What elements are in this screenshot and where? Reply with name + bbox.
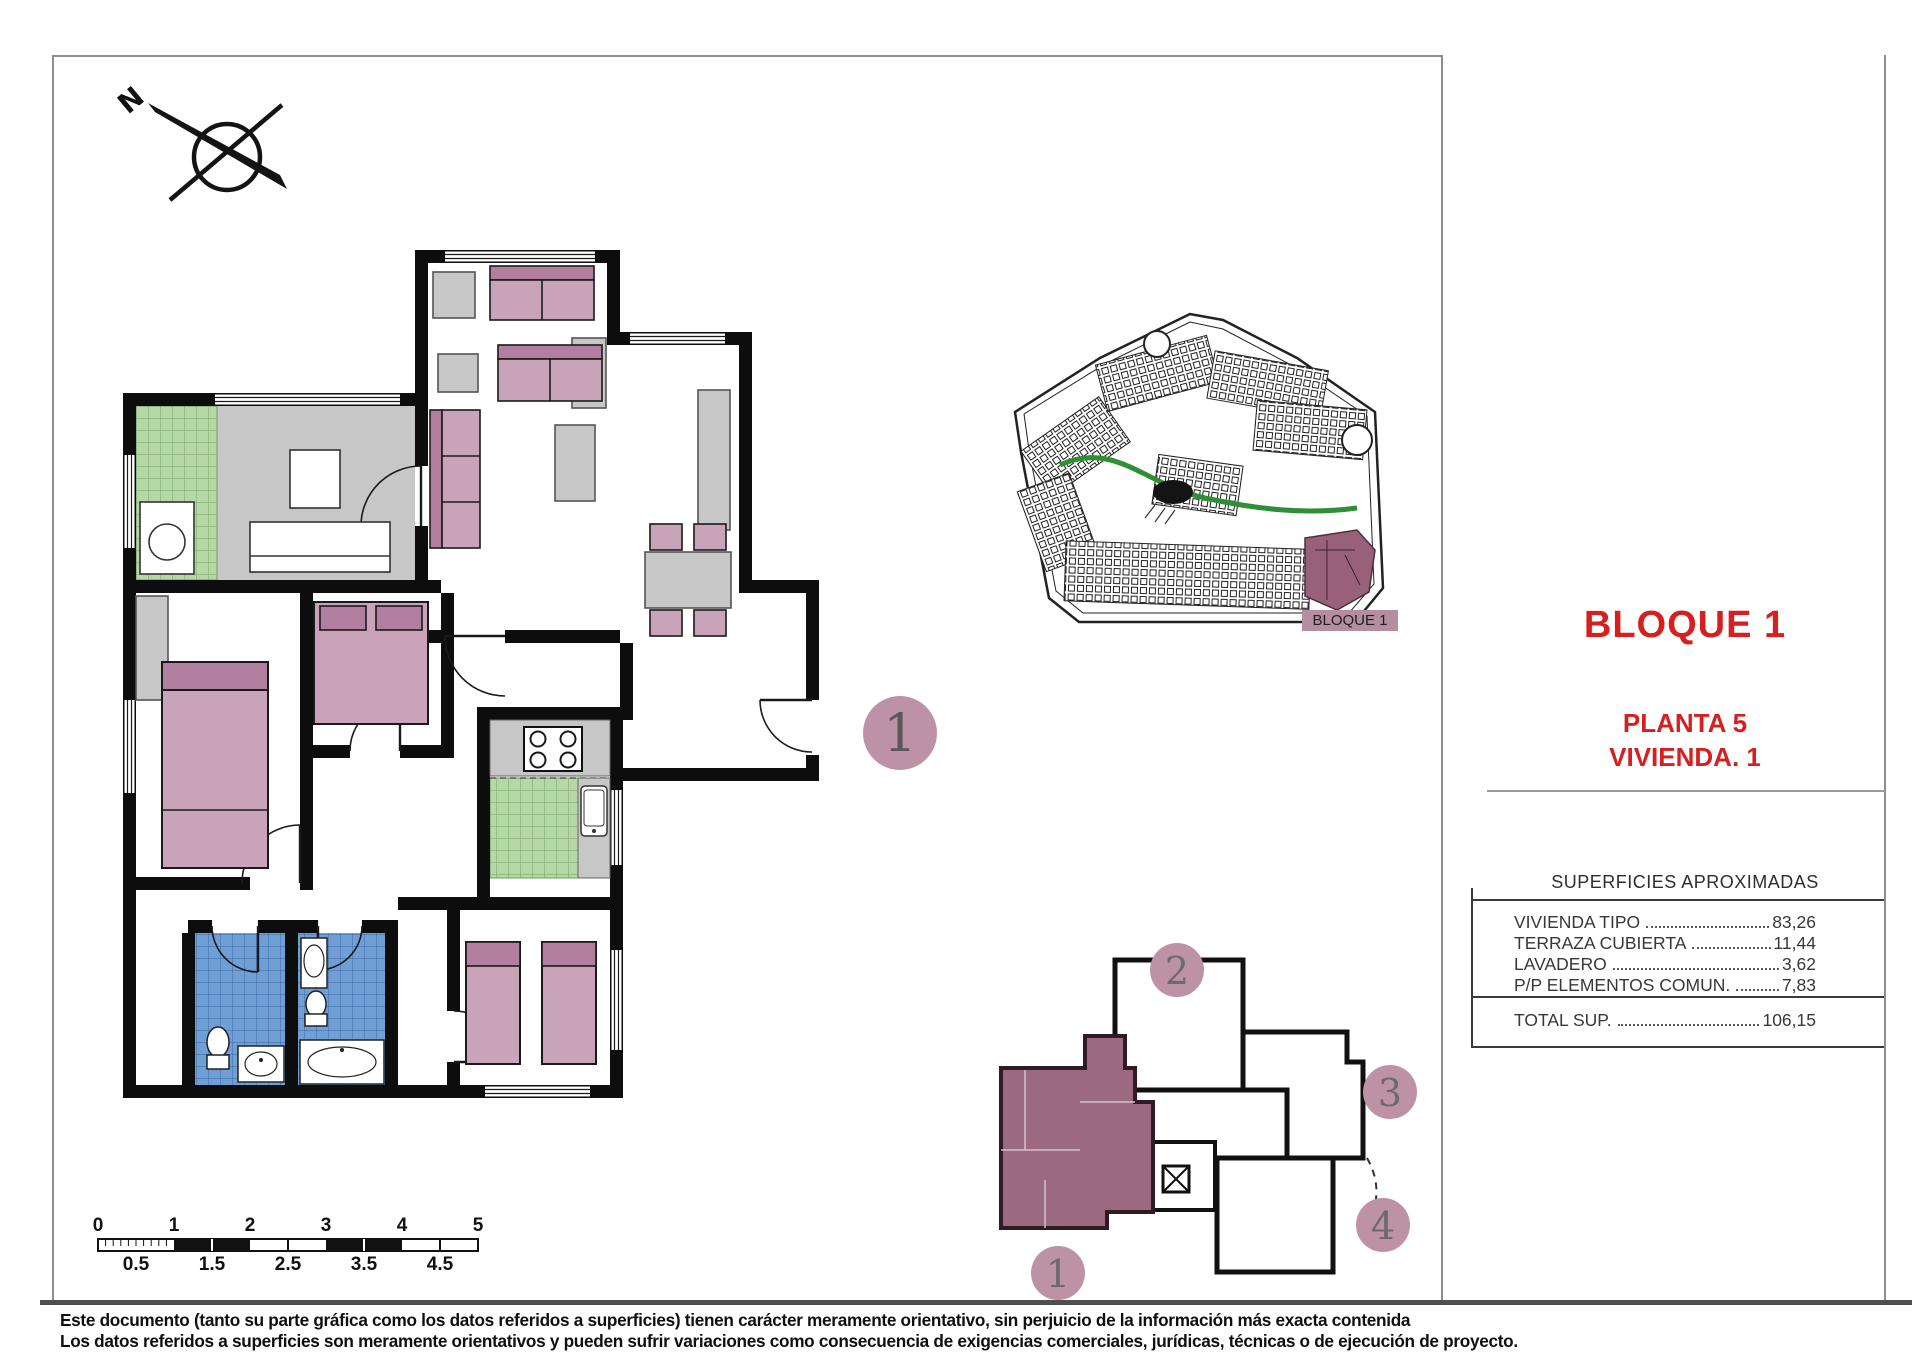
title-divider [1487,790,1885,792]
svg-text:5: 5 [473,1215,484,1236]
svg-text:1: 1 [169,1215,180,1236]
table-row: P/P ELEMENTOS COMUN. 7,83 [1514,975,1816,996]
page-title: BLOQUE 1 [1485,604,1885,647]
svg-text:3.5: 3.5 [351,1254,378,1275]
surfaces-rows: VIVIENDA TIPO 83,26 TERRAZA CUBIERTA 11,… [1514,912,1816,996]
surfaces-line-mid [1471,996,1884,998]
svg-text:2: 2 [245,1215,256,1236]
svg-text:4.5: 4.5 [427,1254,454,1275]
disclaimer: Este documento (tanto su parte gráfica c… [60,1310,1910,1352]
svg-text:2.5: 2.5 [275,1254,302,1275]
disclaimer-line-1: Este documento (tanto su parte gráfica c… [60,1310,1910,1331]
surfaces-line-top [1471,899,1884,901]
floor-plan: 1 [100,250,960,1140]
total-value: 106,15 [1762,1010,1816,1031]
north-compass-icon: N [100,75,320,245]
key-unit-1-number: 1 [1046,1252,1070,1296]
scale-bar: 0 1 2 3 4 5 0.5 1.5 2.5 3.5 4.5 [90,1215,520,1277]
unit-marker: 1 [863,696,937,770]
svg-text:0: 0 [93,1215,104,1236]
footer-rule [40,1300,1912,1305]
disclaimer-line-2: Los datos referidos a superficies son me… [60,1331,1910,1352]
surfaces-total-row: TOTAL SUP. 106,15 [1514,1010,1816,1031]
site-plan-label: BLOQUE 1 [1302,610,1398,631]
plan-sheet: N [0,0,1920,1352]
table-row: VIVIENDA TIPO 83,26 [1514,912,1816,933]
title-column-border [1884,55,1886,1303]
surfaces-line-bottom [1471,1046,1884,1048]
key-unit-3-number: 3 [1378,1071,1402,1115]
table-row: TERRAZA CUBIERTA 11,44 [1514,933,1816,954]
vivienda-subtitle: VIVIENDA. 1 [1485,742,1885,773]
svg-text:4: 4 [397,1215,408,1236]
key-unit-2-number: 2 [1165,949,1189,993]
site-plan [1005,300,1440,655]
key-plan: 1 2 3 4 [985,940,1435,1335]
key-unit-4-number: 4 [1371,1204,1395,1248]
table-row: LAVADERO 3,62 [1514,954,1816,975]
planta-subtitle: PLANTA 5 [1485,708,1885,739]
total-label: TOTAL SUP. [1514,1010,1612,1031]
svg-text:3: 3 [321,1215,332,1236]
surfaces-table-title: SUPERFICIES APROXIMADAS [1485,872,1885,893]
surfaces-line-left [1471,888,1473,1046]
svg-text:0.5: 0.5 [123,1254,150,1275]
svg-text:1.5: 1.5 [199,1254,226,1275]
unit-marker-number: 1 [883,704,916,764]
north-label: N [111,80,150,120]
